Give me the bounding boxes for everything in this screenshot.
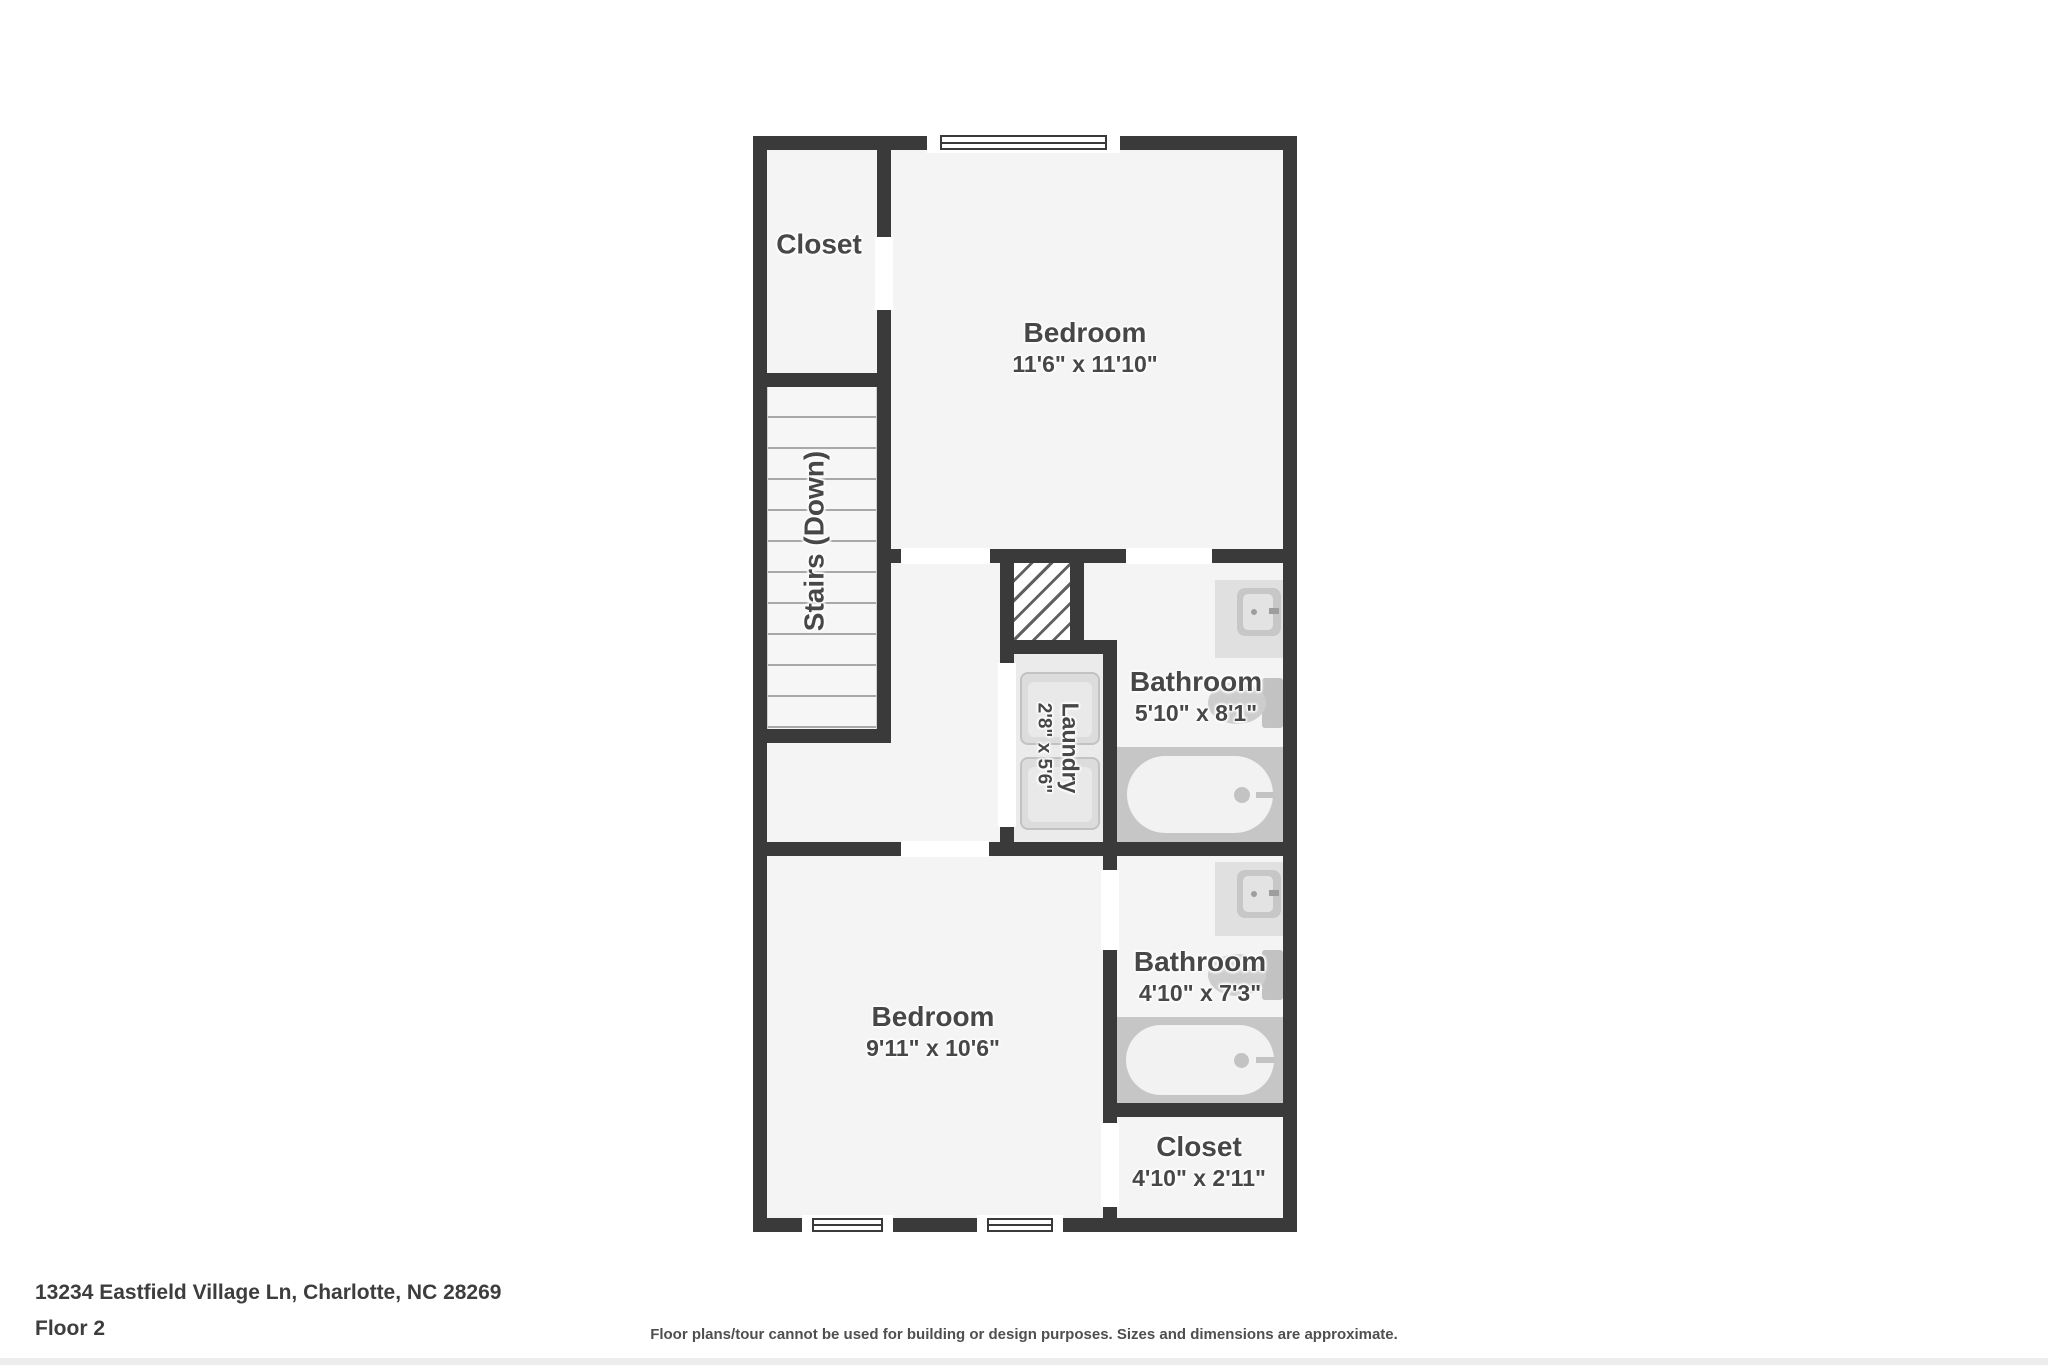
room-dims: 2'8" x 5'6" (1032, 703, 1056, 794)
room-name: Closet (1132, 1129, 1266, 1164)
tub-drain-icon-bottom (1234, 1053, 1249, 1068)
wall-hatch-left (1000, 549, 1014, 654)
tub-spout-icon-bottom (1256, 1057, 1274, 1063)
door-opening-bedroom-bottom (901, 841, 989, 857)
room-dims: 11'6" x 11'10" (1012, 350, 1157, 379)
room-dims: 4'10" x 2'11" (1132, 1164, 1266, 1193)
wall-exterior-right (1283, 136, 1297, 1232)
door-opening-laundry (998, 663, 1016, 827)
door-opening-closet-bottom (1101, 1123, 1119, 1207)
window-bedroom-bottom-2 (977, 1215, 1063, 1235)
room-name: Closet (776, 227, 862, 262)
room-name: Bedroom (1012, 315, 1157, 350)
bottom-edge-strip (0, 1358, 2048, 1365)
door-opening-bathroom-bottom (1101, 870, 1119, 950)
faucet-dash-icon (1269, 608, 1279, 614)
room-label-stairs: Stairs (Down) (797, 451, 832, 631)
wall-hatch-right (1070, 549, 1084, 654)
room-name: Bathroom (1134, 944, 1266, 979)
room-label-bathroom-bottom: Bathroom 4'10" x 7'3" (1134, 944, 1266, 1008)
bathtub-icon-top (1127, 756, 1273, 833)
room-label-closet-bottom: Closet 4'10" x 2'11" (1132, 1129, 1266, 1193)
wall-stairs-bottom (753, 729, 891, 743)
window-bedroom-top (927, 133, 1120, 153)
room-name: Stairs (Down) (797, 451, 832, 631)
room-name: Bathroom (1130, 664, 1262, 699)
wall-bathroom-closet-divider (1103, 1103, 1297, 1117)
faucet-dash-icon (1269, 890, 1279, 896)
disclaimer-text: Floor plans/tour cannot be used for buil… (0, 1326, 2048, 1343)
wall-bedroom-bottom-top (753, 842, 1297, 856)
wall-laundry-top (1000, 640, 1117, 654)
sink-icon-bottom (1215, 862, 1283, 936)
faucet-dot-icon (1251, 891, 1257, 897)
faucet-dot-icon (1251, 609, 1257, 615)
tub-spout-icon-top (1256, 792, 1274, 798)
address-text: 13234 Eastfield Village Ln, Charlotte, N… (35, 1281, 501, 1305)
room-dims: 9'11" x 10'6" (866, 1034, 1000, 1063)
door-opening-bedroom-top (901, 548, 990, 564)
room-label-closet-top: Closet (776, 227, 862, 262)
window-bedroom-bottom-1 (802, 1215, 893, 1235)
room-label-bedroom-top: Bedroom 11'6" x 11'10" (1012, 315, 1157, 379)
wall-exterior-left (753, 136, 767, 1232)
window-glass (940, 135, 1107, 150)
door-opening-bathroom-top (1126, 548, 1212, 564)
room-name: Bedroom (866, 999, 1000, 1034)
room-label-bathroom-top: Bathroom 5'10" x 8'1" (1130, 664, 1262, 728)
room-dims: 5'10" x 8'1" (1130, 699, 1262, 728)
window-glass (812, 1218, 883, 1232)
room-dims: 4'10" x 7'3" (1134, 979, 1266, 1008)
bathtub-icon-bottom (1126, 1025, 1274, 1095)
floor-plan-page: Closet Bedroom 11'6" x 11'10" Stairs (Do… (0, 0, 2048, 1365)
room-label-bedroom-bottom: Bedroom 9'11" x 10'6" (866, 999, 1000, 1063)
room-label-laundry: Laundry 2'8" x 5'6" (1032, 703, 1085, 794)
hatch-shaft (1014, 563, 1070, 640)
window-glass (987, 1218, 1053, 1232)
room-name: Laundry (1056, 703, 1085, 794)
door-opening-closet-top (875, 237, 893, 310)
wall-closet-stairs-divider (877, 136, 891, 743)
tub-drain-icon-top (1234, 787, 1250, 803)
wall-closet-top-bottom (753, 373, 891, 387)
sink-basin-icon (1237, 870, 1281, 918)
sink-basin-icon (1237, 588, 1281, 636)
sink-icon-top (1215, 580, 1283, 658)
